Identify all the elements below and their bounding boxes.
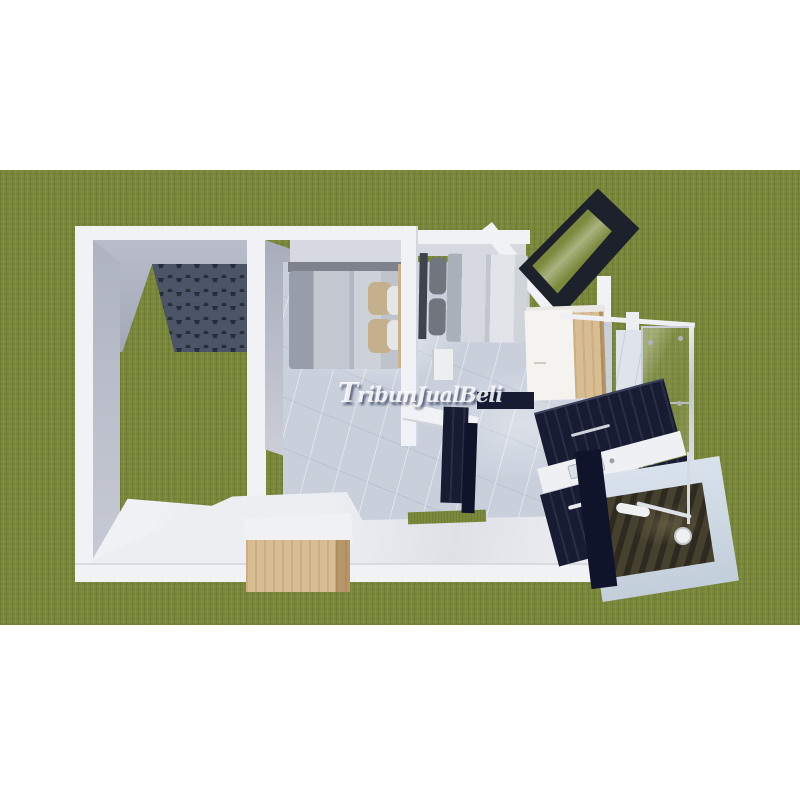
screenshot-canvas: TribunJualBeli: [0, 0, 800, 800]
letterbox-top: [0, 0, 800, 170]
bench-wood-front: [246, 540, 350, 592]
watermark-text: TribunJualBeli: [338, 378, 502, 409]
letterbox-bottom: [0, 625, 800, 800]
